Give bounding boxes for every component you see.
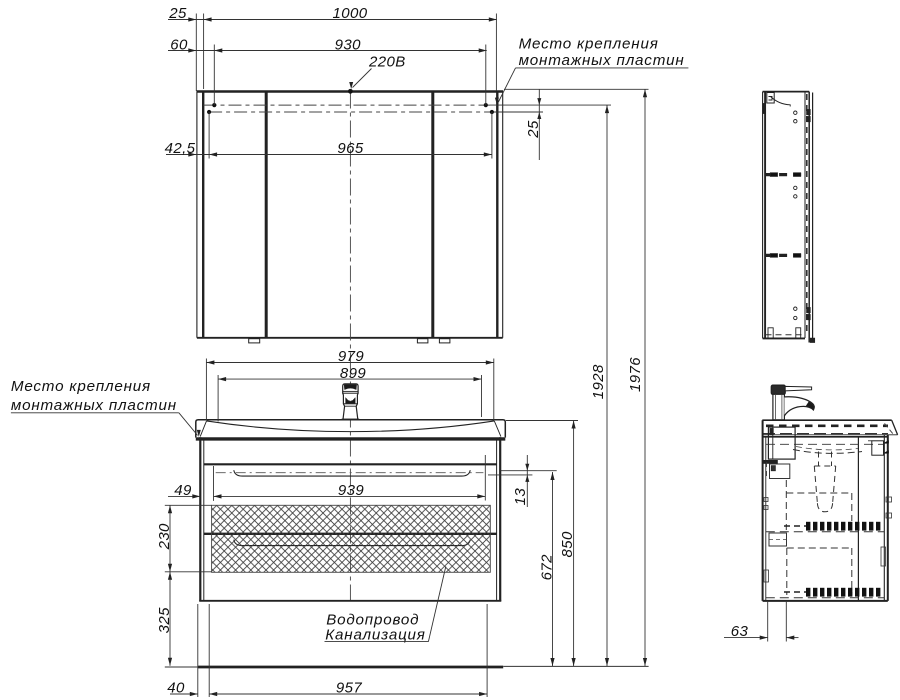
svg-text:220В: 220В bbox=[368, 54, 406, 71]
svg-text:Место крепления: Место крепления bbox=[519, 35, 659, 52]
svg-text:965: 965 bbox=[337, 140, 363, 157]
svg-text:672: 672 bbox=[538, 554, 555, 580]
svg-text:899: 899 bbox=[340, 365, 366, 382]
svg-text:монтажных пластин: монтажных пластин bbox=[519, 52, 685, 69]
svg-text:939: 939 bbox=[338, 482, 364, 499]
svg-text:230: 230 bbox=[156, 523, 173, 550]
svg-text:1928: 1928 bbox=[590, 364, 607, 399]
svg-text:Канализация: Канализация bbox=[325, 627, 425, 644]
svg-text:60: 60 bbox=[170, 36, 188, 53]
svg-text:63: 63 bbox=[731, 623, 749, 640]
svg-text:40: 40 bbox=[167, 680, 185, 697]
svg-text:49: 49 bbox=[174, 482, 192, 499]
svg-text:25: 25 bbox=[168, 5, 187, 22]
svg-text:42,5: 42,5 bbox=[165, 140, 196, 157]
svg-text:957: 957 bbox=[336, 680, 362, 697]
svg-text:930: 930 bbox=[335, 36, 361, 53]
svg-text:Место крепления: Место крепления bbox=[11, 378, 151, 395]
svg-text:979: 979 bbox=[338, 348, 364, 365]
svg-text:монтажных пластин: монтажных пластин bbox=[11, 397, 177, 414]
svg-text:325: 325 bbox=[156, 607, 173, 633]
svg-text:1976: 1976 bbox=[627, 357, 644, 392]
svg-text:25: 25 bbox=[525, 120, 542, 139]
svg-text:13: 13 bbox=[512, 488, 529, 506]
svg-text:1000: 1000 bbox=[333, 5, 368, 22]
svg-text:850: 850 bbox=[559, 531, 576, 557]
